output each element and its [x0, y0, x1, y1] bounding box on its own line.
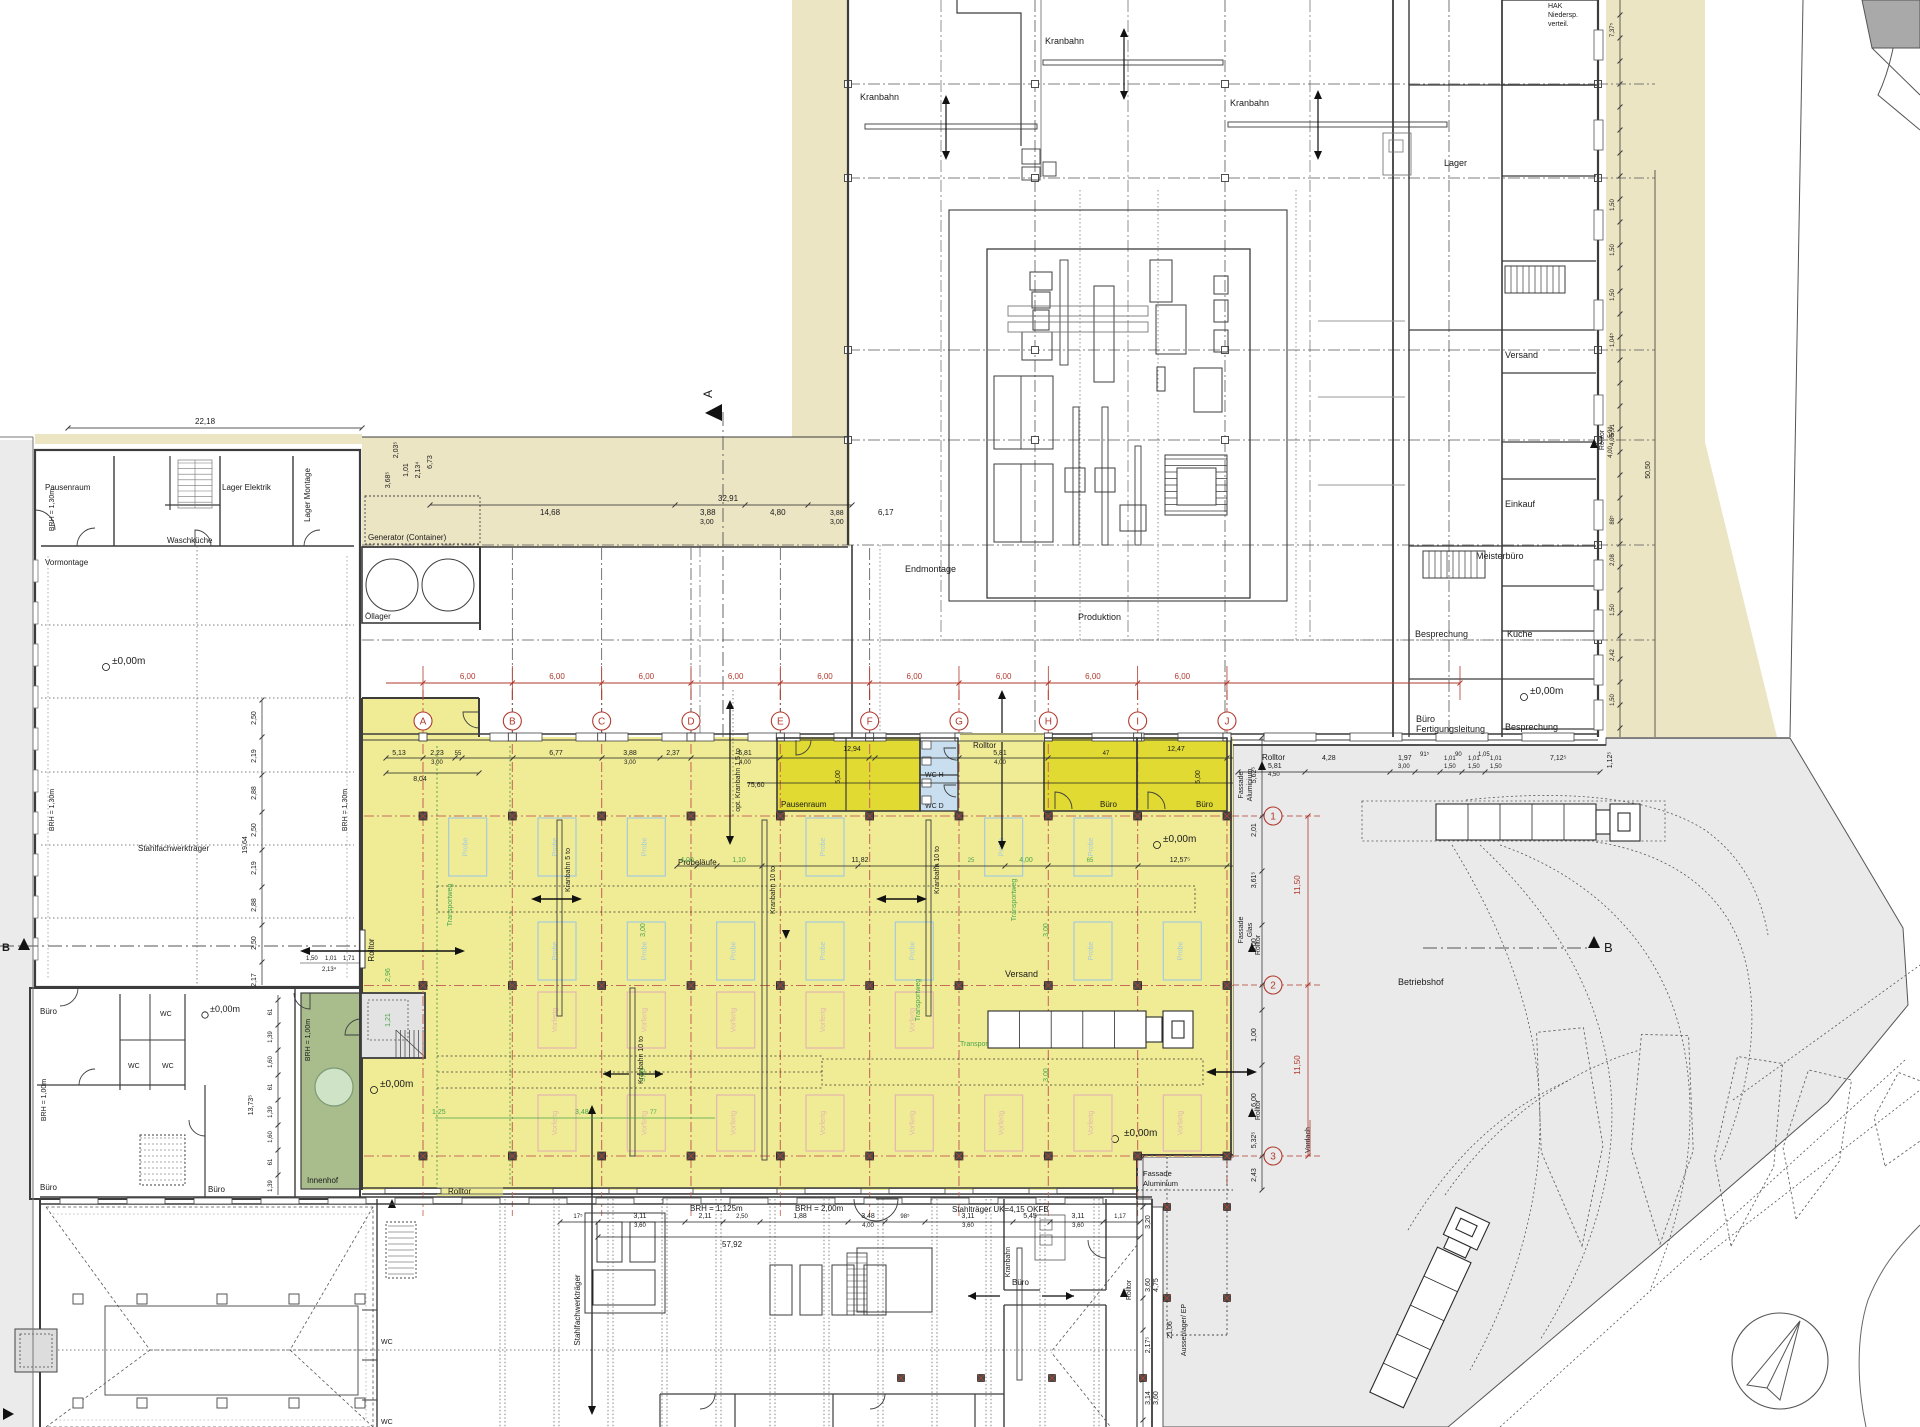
svg-text:1,10: 1,10	[732, 857, 746, 864]
svg-text:1,50: 1,50	[1444, 764, 1456, 770]
svg-text:12,94: 12,94	[843, 746, 861, 753]
svg-text:4,28: 4,28	[1322, 755, 1336, 762]
svg-text:4,80: 4,80	[770, 508, 786, 517]
svg-text:Meisterbüro: Meisterbüro	[1476, 551, 1524, 561]
svg-text:1,05: 1,05	[1478, 752, 1490, 758]
svg-text:3,68⁵: 3,68⁵	[385, 472, 392, 489]
svg-text:Probe: Probe	[1088, 838, 1095, 857]
svg-text:5,91: 5,91	[1608, 426, 1614, 438]
svg-text:1,01: 1,01	[1490, 756, 1502, 762]
svg-text:4,00: 4,00	[1608, 446, 1614, 458]
svg-text:3,60: 3,60	[1072, 1223, 1084, 1229]
svg-text:2,19: 2,19	[251, 861, 258, 875]
svg-text:Büro: Büro	[1012, 1278, 1029, 1287]
svg-text:Rolltor: Rolltor	[367, 938, 376, 961]
svg-text:61: 61	[268, 1008, 274, 1015]
svg-text:5,62⁵: 5,62⁵	[1251, 767, 1258, 784]
svg-text:Besprechung: Besprechung	[1415, 629, 1468, 639]
svg-text:14,68: 14,68	[540, 508, 561, 517]
svg-text:Büro: Büro	[208, 1185, 225, 1194]
svg-text:G: G	[955, 717, 963, 728]
svg-text:Fassade: Fassade	[1238, 916, 1245, 943]
svg-text:3: 3	[1270, 1152, 1276, 1163]
svg-text:6,00: 6,00	[728, 672, 744, 681]
svg-text:Probe: Probe	[820, 838, 827, 857]
svg-text:22,18: 22,18	[195, 417, 216, 426]
svg-text:Betriebshof: Betriebshof	[1398, 977, 1444, 987]
svg-text:Kranbahn: Kranbahn	[860, 92, 899, 102]
svg-text:Niedersp.: Niedersp.	[1548, 12, 1578, 19]
svg-text:Vorfertg: Vorfertg	[641, 1111, 648, 1136]
svg-text:Versand: Versand	[1505, 350, 1538, 360]
svg-text:2,19: 2,19	[251, 749, 258, 763]
svg-text:Probe: Probe	[552, 942, 559, 961]
svg-text:Produktion: Produktion	[1078, 612, 1121, 622]
svg-text:3,14: 3,14	[1145, 1391, 1152, 1405]
svg-text:Lager: Lager	[1444, 158, 1467, 168]
svg-text:6,00: 6,00	[1175, 672, 1191, 681]
svg-text:6,00: 6,00	[549, 672, 565, 681]
svg-text:Vorfertg: Vorfertg	[1177, 1111, 1184, 1136]
svg-text:6,00: 6,00	[817, 672, 833, 681]
svg-text:6,00: 6,00	[996, 672, 1012, 681]
svg-text:Büro: Büro	[40, 1183, 57, 1192]
svg-text:11,50: 11,50	[1293, 875, 1302, 895]
svg-text:5,81: 5,81	[1268, 763, 1282, 770]
svg-text:Vorfertg: Vorfertg	[731, 1008, 738, 1033]
svg-text:4,00: 4,00	[1019, 857, 1033, 864]
svg-text:1,21: 1,21	[385, 1013, 392, 1027]
svg-text:3,20: 3,20	[1145, 1215, 1152, 1229]
svg-text:3,00: 3,00	[1398, 764, 1410, 770]
svg-text:BRH = 1,125m: BRH = 1,125m	[690, 1204, 743, 1213]
svg-text:3,00: 3,00	[624, 760, 636, 766]
svg-text:Kranbahn: Kranbahn	[1005, 1247, 1012, 1277]
svg-text:H: H	[1045, 717, 1052, 728]
svg-text:Vorfertg: Vorfertg	[552, 1008, 559, 1033]
svg-text:Kranbahn 5 to: Kranbahn 5 to	[565, 848, 572, 892]
svg-text:2: 2	[1270, 981, 1276, 992]
svg-text:3,60: 3,60	[1145, 1278, 1152, 1292]
svg-text:Rolltor: Rolltor	[973, 741, 996, 750]
svg-text:32,91: 32,91	[718, 494, 739, 503]
svg-text:1,39: 1,39	[268, 1106, 274, 1118]
svg-text:1,01: 1,01	[403, 463, 410, 477]
svg-text:Endmontage: Endmontage	[905, 564, 956, 574]
svg-text:Stahlträger UK=4,15 OKFB: Stahlträger UK=4,15 OKFB	[952, 1205, 1049, 1214]
svg-text:2,88: 2,88	[251, 898, 258, 912]
svg-text:verteil.: verteil.	[1548, 21, 1569, 28]
svg-text:Vorfertg: Vorfertg	[552, 1111, 559, 1136]
svg-text:A: A	[420, 717, 427, 728]
svg-text:3,00: 3,00	[640, 923, 647, 937]
svg-text:WC: WC	[381, 1339, 393, 1346]
svg-text:6,00: 6,00	[639, 672, 655, 681]
svg-text:13,73⁵: 13,73⁵	[248, 1095, 255, 1116]
svg-text:±0,00m: ±0,00m	[210, 1004, 240, 1014]
svg-text:Aluminium: Aluminium	[1143, 1179, 1178, 1188]
svg-text:4,00: 4,00	[994, 760, 1006, 766]
svg-text:8,04: 8,04	[413, 776, 427, 783]
svg-text:BRH = 1,00m: BRH = 1,00m	[41, 1079, 48, 1121]
svg-text:2,23: 2,23	[430, 750, 444, 757]
svg-text:Kranbahn 10 to: Kranbahn 10 to	[770, 866, 777, 914]
svg-text:3,60: 3,60	[1153, 1391, 1160, 1405]
svg-text:3,48: 3,48	[575, 1109, 589, 1116]
svg-text:1,60: 1,60	[268, 1056, 274, 1068]
svg-text:19,64: 19,64	[242, 836, 249, 854]
svg-text:2,03⁵: 2,03⁵	[393, 442, 400, 459]
svg-text:4,00: 4,00	[862, 1223, 874, 1229]
svg-text:Probe: Probe	[1088, 942, 1095, 961]
svg-text:2,43: 2,43	[1251, 1168, 1258, 1182]
svg-text:2,50: 2,50	[251, 711, 258, 725]
svg-text:BRH = 1,00m: BRH = 1,00m	[305, 1019, 312, 1061]
svg-text:Vordach: Vordach	[1305, 1127, 1312, 1153]
svg-text:Kranbahn 10 to: Kranbahn 10 to	[934, 846, 941, 894]
svg-text:B: B	[2, 942, 10, 954]
svg-text:Stahlfachwerkträger: Stahlfachwerkträger	[138, 844, 209, 853]
svg-text:Büro: Büro	[40, 1007, 57, 1016]
svg-text:Einkauf: Einkauf	[1505, 499, 1536, 509]
svg-text:C: C	[598, 717, 605, 728]
svg-text:3,00: 3,00	[640, 1068, 647, 1082]
svg-text:3,88: 3,88	[700, 508, 716, 517]
svg-text:Probe: Probe	[641, 838, 648, 857]
svg-text:3,11: 3,11	[961, 1213, 974, 1220]
svg-text:Kranbahn: Kranbahn	[1045, 36, 1084, 46]
svg-text:Besprechung: Besprechung	[1505, 722, 1558, 732]
svg-text:1,50: 1,50	[1610, 604, 1616, 616]
svg-text:5,32⁵: 5,32⁵	[1251, 1132, 1258, 1149]
svg-text:3,11: 3,11	[1071, 1213, 1084, 1220]
svg-text:1,25: 1,25	[432, 1109, 446, 1116]
svg-text:5,81: 5,81	[738, 750, 752, 757]
svg-text:Probe: Probe	[820, 942, 827, 961]
svg-text:Fertigungsleitung: Fertigungsleitung	[1416, 724, 1485, 734]
svg-text:Probe: Probe	[1177, 942, 1184, 961]
svg-text:E: E	[777, 717, 784, 728]
svg-text:7,12⁵: 7,12⁵	[1550, 755, 1567, 762]
svg-text:±0,00m: ±0,00m	[1530, 686, 1563, 697]
svg-text:91⁵: 91⁵	[1420, 751, 1430, 758]
svg-text:3,11: 3,11	[633, 1213, 646, 1220]
svg-text:Büro: Büro	[1416, 714, 1435, 724]
svg-text:B: B	[509, 717, 516, 728]
svg-text:3,00: 3,00	[830, 519, 844, 526]
svg-text:Transportweg: Transportweg	[447, 884, 454, 927]
svg-text:BRH = 1,30m: BRH = 1,30m	[49, 789, 56, 831]
svg-text:Waschküche: Waschküche	[167, 536, 213, 545]
svg-text:WC: WC	[381, 1419, 393, 1426]
svg-text:6,00: 6,00	[460, 672, 476, 681]
svg-text:3,00: 3,00	[431, 760, 443, 766]
svg-text:Transportweg: Transportweg	[1011, 879, 1018, 922]
svg-text:4,00: 4,00	[680, 857, 694, 864]
svg-text:4,00: 4,00	[739, 760, 751, 766]
svg-text:1,50: 1,50	[1610, 244, 1616, 256]
svg-text:Vorfertg: Vorfertg	[641, 1008, 648, 1033]
svg-text:1,88: 1,88	[793, 1213, 807, 1220]
svg-text:Vorfertg: Vorfertg	[909, 1111, 916, 1136]
svg-text:Kranbahn: Kranbahn	[1230, 98, 1269, 108]
svg-text:D: D	[687, 717, 694, 728]
svg-text:Stahlfachwerkträger: Stahlfachwerkträger	[573, 1274, 582, 1345]
svg-text:3,00: 3,00	[1043, 1068, 1050, 1082]
svg-text:1,00: 1,00	[1251, 1028, 1258, 1042]
svg-text:1,50: 1,50	[1610, 694, 1616, 706]
svg-text:WC: WC	[128, 1063, 140, 1070]
svg-text:3,00: 3,00	[700, 519, 714, 526]
svg-text:HAK: HAK	[1548, 3, 1563, 10]
svg-text:2,13⁴: 2,13⁴	[322, 966, 337, 973]
svg-text:6,00: 6,00	[1085, 672, 1101, 681]
svg-text:2,96: 2,96	[385, 968, 392, 982]
svg-text:77: 77	[650, 1110, 657, 1116]
svg-text:98⁵: 98⁵	[900, 1213, 910, 1220]
svg-text:Generator (Container): Generator (Container)	[368, 533, 447, 542]
svg-text:1,12⁵: 1,12⁵	[1607, 752, 1614, 769]
svg-text:3,88: 3,88	[830, 510, 844, 517]
svg-text:2,11: 2,11	[698, 1213, 711, 1220]
svg-text:4,50: 4,50	[1268, 772, 1280, 778]
svg-text:Probe: Probe	[552, 838, 559, 857]
svg-text:WC: WC	[160, 1011, 172, 1018]
svg-text:Vorfertg: Vorfertg	[999, 1111, 1006, 1136]
svg-text:5,81: 5,81	[993, 750, 1007, 757]
svg-text:5,45: 5,45	[1023, 1213, 1037, 1220]
svg-text:2,08: 2,08	[1610, 554, 1616, 566]
svg-text:1,60: 1,60	[268, 1131, 274, 1143]
svg-text:Vorfertg: Vorfertg	[731, 1111, 738, 1136]
svg-text:75,60: 75,60	[747, 782, 765, 789]
svg-text:Innenhof: Innenhof	[307, 1176, 339, 1185]
svg-text:Glas: Glas	[1247, 922, 1254, 937]
svg-text:11,82: 11,82	[852, 857, 869, 864]
svg-text:6,00: 6,00	[1251, 1093, 1258, 1107]
svg-text:BRH = 2,00m: BRH = 2,00m	[795, 1204, 844, 1213]
svg-text:3,60: 3,60	[962, 1223, 974, 1229]
svg-text:11,50: 11,50	[1293, 1055, 1302, 1075]
svg-text:3,88: 3,88	[623, 750, 637, 757]
svg-text:12,47: 12,47	[1167, 746, 1185, 753]
svg-text:1,39: 1,39	[268, 1031, 274, 1043]
svg-text:88⁵: 88⁵	[1609, 515, 1616, 525]
svg-text:Rolltor: Rolltor	[1262, 753, 1285, 762]
svg-text:Rolltor: Rolltor	[448, 1187, 471, 1196]
svg-text:1,01: 1,01	[325, 956, 337, 962]
svg-text:1,50: 1,50	[306, 956, 318, 962]
svg-text:2,88: 2,88	[251, 786, 258, 800]
svg-text:Küche: Küche	[1507, 629, 1533, 639]
svg-text:5,00: 5,00	[1195, 770, 1202, 784]
svg-text:6,77: 6,77	[549, 750, 563, 757]
svg-text:3,60: 3,60	[634, 1223, 646, 1229]
svg-text:Lager Montage: Lager Montage	[303, 468, 312, 522]
svg-text:±0,00m: ±0,00m	[380, 1079, 413, 1090]
svg-text:A: A	[701, 390, 715, 398]
svg-text:55: 55	[455, 751, 462, 757]
svg-text:2,17: 2,17	[251, 973, 258, 987]
svg-text:50,50: 50,50	[1645, 461, 1652, 479]
svg-text:2,50: 2,50	[251, 936, 258, 950]
svg-text:2,13⁴: 2,13⁴	[415, 462, 422, 479]
svg-text:Büro: Büro	[1100, 800, 1117, 809]
svg-text:B: B	[1604, 940, 1613, 955]
svg-text:Probe: Probe	[463, 838, 470, 857]
svg-text:1: 1	[1270, 812, 1276, 823]
svg-text:1,71: 1,71	[343, 956, 355, 962]
svg-text:Aussenlager/ EP: Aussenlager/ EP	[1181, 1304, 1188, 1356]
svg-text:12,57⁵: 12,57⁵	[1170, 857, 1191, 864]
svg-text:Lager Elektrik: Lager Elektrik	[222, 483, 272, 492]
svg-text:1,17: 1,17	[1114, 1214, 1126, 1220]
svg-text:3,48: 3,48	[861, 1213, 875, 1220]
svg-text:90: 90	[1455, 752, 1462, 758]
svg-text:Probe: Probe	[731, 942, 738, 961]
svg-text:Transportweg: Transportweg	[915, 979, 922, 1022]
svg-text:Vorfertg: Vorfertg	[1088, 1111, 1095, 1136]
svg-text:5,00: 5,00	[835, 770, 842, 784]
svg-text:WC H: WC H	[925, 772, 944, 779]
svg-text:5,13: 5,13	[392, 750, 406, 757]
svg-text:Probe: Probe	[909, 942, 916, 961]
svg-text:2,50: 2,50	[251, 823, 258, 837]
svg-text:6,73: 6,73	[427, 455, 434, 469]
svg-text:21,06: 21,06	[1167, 1321, 1174, 1339]
svg-text:1,97: 1,97	[1398, 755, 1412, 762]
svg-text:1,04⁵: 1,04⁵	[1609, 332, 1616, 347]
svg-text:±0,00m: ±0,00m	[112, 656, 145, 667]
svg-text:1,50: 1,50	[1610, 199, 1616, 211]
svg-text:6,17: 6,17	[878, 508, 894, 517]
svg-text:J: J	[1224, 717, 1229, 728]
svg-text:F: F	[867, 717, 873, 728]
svg-text:61: 61	[268, 1158, 274, 1165]
svg-text:Fassade: Fassade	[1143, 1169, 1172, 1178]
svg-text:Vorfertg: Vorfertg	[820, 1008, 827, 1033]
svg-text:25: 25	[968, 858, 975, 864]
svg-text:2,42: 2,42	[1610, 649, 1616, 661]
svg-text:1,50: 1,50	[1468, 764, 1480, 770]
svg-text:7,37⁵: 7,37⁵	[1609, 22, 1616, 37]
svg-text:2,01: 2,01	[1251, 823, 1258, 837]
svg-text:57,92: 57,92	[722, 1240, 743, 1249]
svg-text:1,50: 1,50	[1490, 764, 1502, 770]
svg-text:BRH = 1,30m: BRH = 1,30m	[342, 789, 349, 831]
svg-text:Pausenraum: Pausenraum	[781, 800, 827, 809]
svg-text:1,39: 1,39	[268, 1180, 274, 1192]
svg-text:I: I	[1136, 717, 1139, 728]
svg-text:Probe: Probe	[641, 942, 648, 961]
svg-text:6,00: 6,00	[1251, 938, 1258, 952]
svg-text:±0,00m: ±0,00m	[1163, 834, 1196, 845]
svg-text:2,37: 2,37	[666, 750, 680, 757]
svg-text:3,61⁵: 3,61⁵	[1251, 872, 1258, 889]
svg-text:Vormontage: Vormontage	[45, 558, 89, 567]
svg-text:6,00: 6,00	[907, 672, 923, 681]
svg-text:2,17⁵: 2,17⁵	[1145, 1337, 1152, 1354]
svg-text:2,50: 2,50	[736, 1214, 748, 1220]
svg-text:BRH = 1,30m: BRH = 1,30m	[49, 489, 56, 531]
svg-text:±0,00m: ±0,00m	[1124, 1128, 1157, 1139]
svg-text:65: 65	[1087, 858, 1094, 864]
svg-text:1,50: 1,50	[1610, 289, 1616, 301]
svg-text:3,00: 3,00	[1043, 923, 1050, 937]
svg-text:Versand: Versand	[1005, 969, 1038, 979]
svg-text:47: 47	[1103, 751, 1110, 757]
svg-text:Vorfertg: Vorfertg	[820, 1111, 827, 1136]
svg-text:17⁵: 17⁵	[573, 1213, 583, 1220]
svg-text:WC: WC	[162, 1063, 174, 1070]
svg-text:61: 61	[268, 1083, 274, 1090]
svg-text:Büro: Büro	[1196, 800, 1213, 809]
svg-text:4,75: 4,75	[1153, 1278, 1160, 1292]
svg-text:Fassade: Fassade	[1238, 771, 1245, 798]
svg-text:Öllager: Öllager	[365, 612, 391, 621]
